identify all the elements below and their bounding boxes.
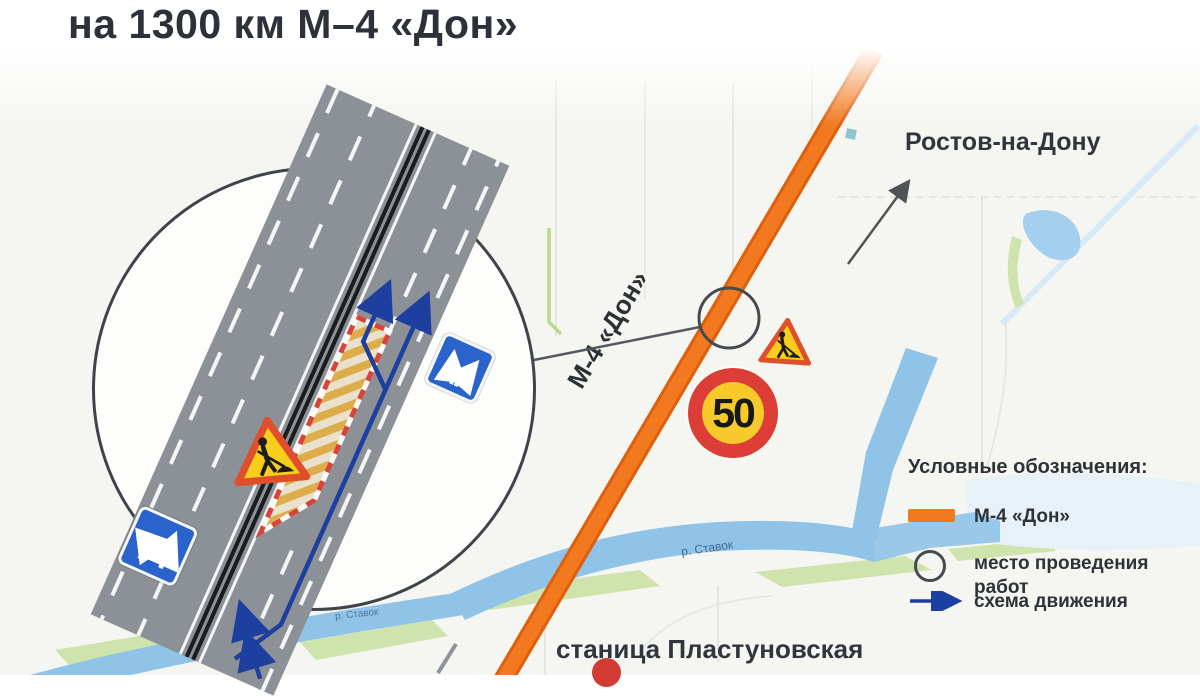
city-label: Ростов-на-Дону	[905, 128, 1101, 157]
legend-item-m4: М-4 «Дон»	[908, 505, 1168, 535]
legend-label-m4: М-4 «Дон»	[974, 505, 1160, 529]
station-marker-dot	[592, 658, 621, 687]
infographic-canvas: р. Ставок р. Ставок М-4 «Дон»	[0, 0, 1200, 675]
legend-heading: Условные обозначения:	[908, 456, 1168, 479]
speed-limit-inner: 50	[702, 382, 764, 444]
legend-item-worksite: место проведения работ	[908, 552, 1168, 582]
map-area: р. Ставок р. Ставок М-4 «Дон»	[0, 0, 1200, 675]
legend: Условные обозначения: М-4 «Дон» место пр…	[908, 456, 1168, 637]
roadworks-sign-icon	[227, 411, 313, 495]
roadworks-sign-map-icon	[756, 314, 816, 373]
speed-limit-value: 50	[712, 390, 754, 437]
map-poi-icon	[845, 128, 857, 140]
work-site-circle-swatch	[914, 550, 946, 582]
m4-road-line-swatch	[908, 509, 955, 522]
minor-road-segment	[438, 644, 456, 673]
speed-limit-sign: 50	[688, 368, 778, 458]
traffic-scheme-arrow-swatch	[908, 591, 966, 611]
page-title: на 1300 км М–4 «Дон»	[68, 1, 518, 48]
legend-item-scheme: схема движения	[908, 590, 1168, 620]
legend-label-scheme: схема движения	[974, 590, 1160, 614]
